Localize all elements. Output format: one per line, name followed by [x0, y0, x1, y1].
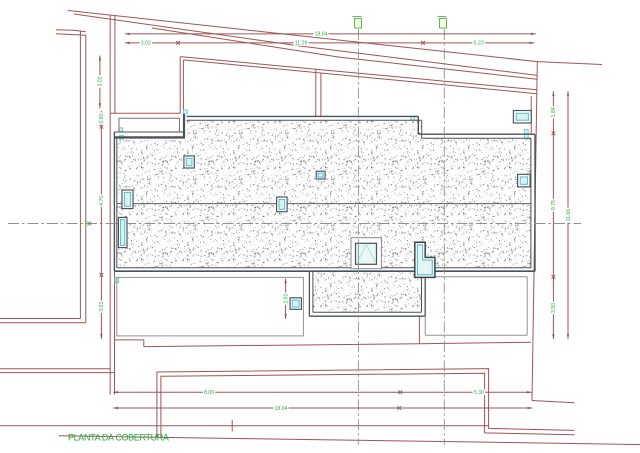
svg-text:8.00: 8.00 [204, 390, 214, 396]
svg-text:2.02: 2.02 [98, 76, 104, 86]
svg-text:5.23: 5.23 [474, 41, 484, 47]
svg-text:11.29: 11.29 [295, 41, 308, 47]
svg-text:18.04: 18.04 [315, 32, 328, 38]
svg-text:4.70: 4.70 [99, 196, 105, 206]
svg-text:3.02: 3.02 [141, 41, 151, 47]
svg-text:11.66: 11.66 [566, 209, 572, 222]
svg-text:2.00: 2.00 [283, 294, 289, 304]
svg-text:18.04: 18.04 [275, 406, 288, 412]
svg-text:1.84: 1.84 [551, 107, 557, 117]
svg-text:3.03: 3.03 [99, 302, 105, 312]
svg-text:9.75: 9.75 [551, 200, 557, 210]
svg-text:PLANTA DA COBERTURA: PLANTA DA COBERTURA [68, 432, 169, 442]
svg-text:0.90: 0.90 [99, 113, 105, 123]
svg-text:5.30: 5.30 [474, 390, 484, 396]
svg-text:3.50: 3.50 [551, 303, 557, 313]
